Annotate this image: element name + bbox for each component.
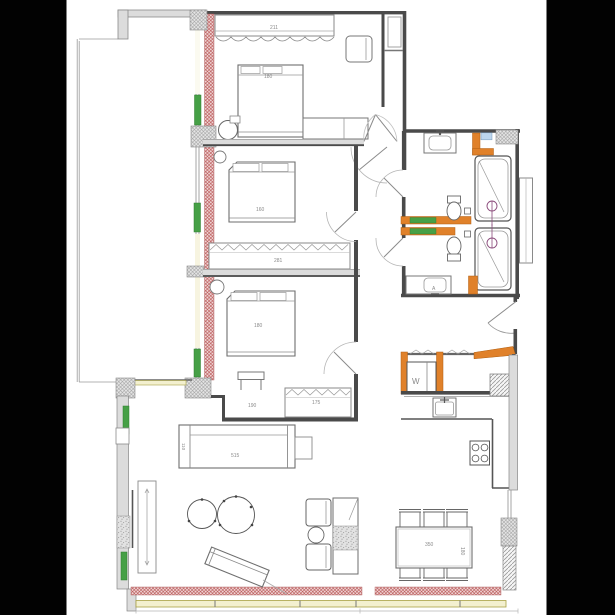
svg-text:110: 110	[181, 443, 186, 451]
svg-text:160: 160	[256, 207, 265, 213]
svg-text:211: 211	[270, 25, 278, 31]
svg-text:175: 175	[312, 400, 321, 406]
svg-text:W: W	[412, 377, 420, 386]
svg-text:350: 350	[425, 542, 434, 548]
svg-text:180: 180	[459, 547, 465, 556]
svg-text:281: 281	[274, 258, 283, 264]
svg-text:180: 180	[264, 74, 273, 80]
svg-text:190: 190	[248, 403, 257, 409]
svg-text:180: 180	[254, 323, 263, 329]
svg-text:515: 515	[231, 453, 240, 459]
